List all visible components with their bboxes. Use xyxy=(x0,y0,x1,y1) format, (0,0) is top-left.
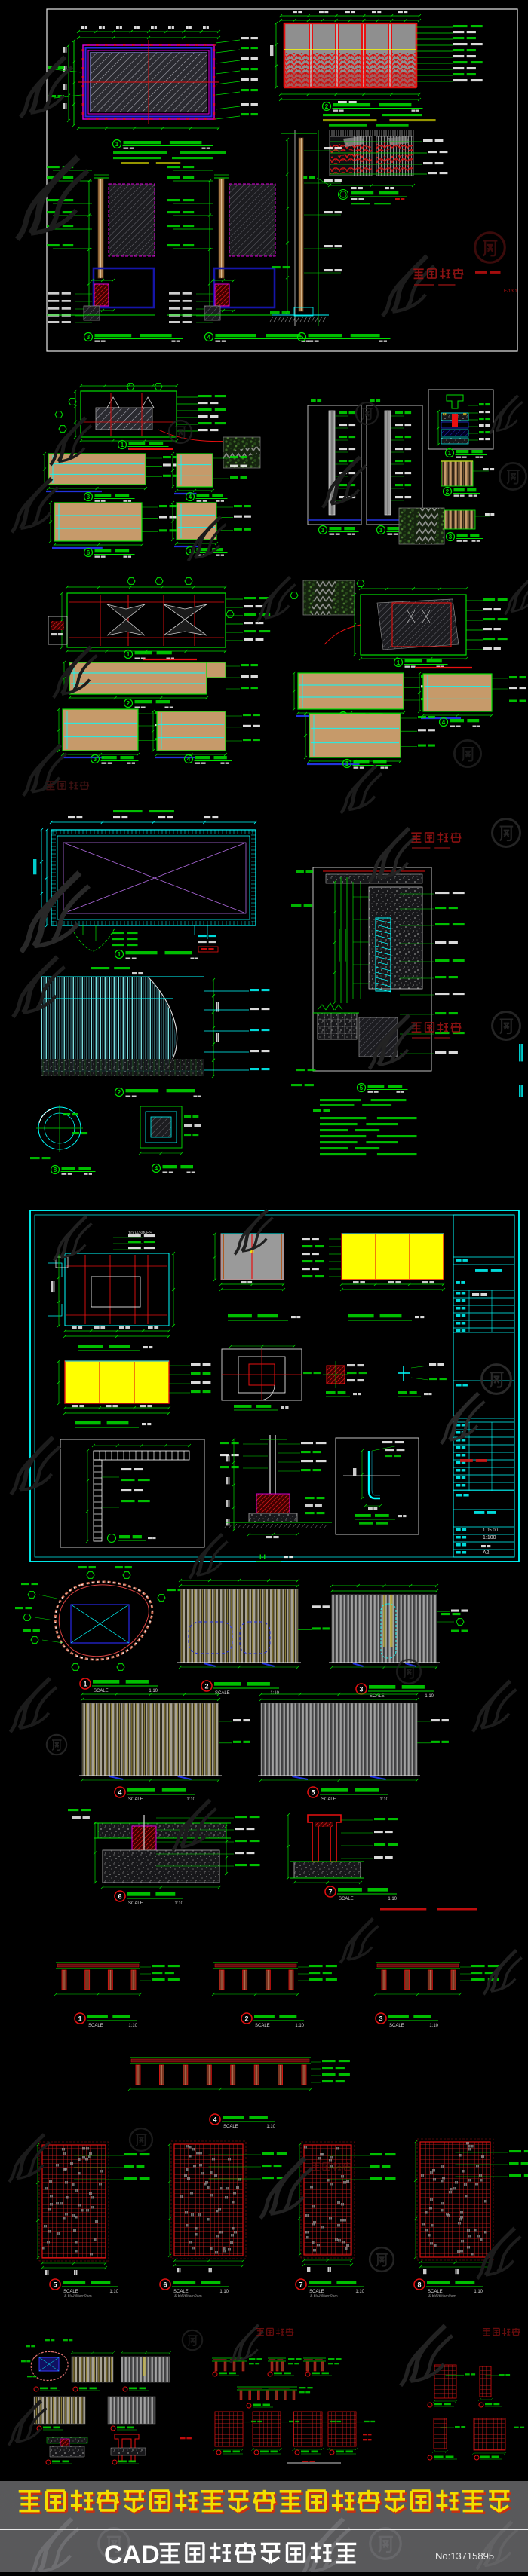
svg-text:SCALE: SCALE xyxy=(370,1694,385,1699)
svg-text:100ASINES: 100ASINES xyxy=(128,1231,152,1236)
svg-text:6: 6 xyxy=(87,549,91,556)
svg-text:5: 5 xyxy=(300,334,304,341)
svg-text:CAD: CAD xyxy=(104,2541,160,2569)
svg-text:1:10: 1:10 xyxy=(355,2290,364,2294)
svg-text:5: 5 xyxy=(53,2281,57,2288)
svg-text:SCALE: SCALE xyxy=(215,1691,230,1696)
svg-text:5: 5 xyxy=(311,1788,315,1796)
svg-text:1: 1 xyxy=(115,141,119,148)
svg-text:A2: A2 xyxy=(483,1550,490,1556)
svg-text:SCALE: SCALE xyxy=(321,1797,336,1802)
svg-text:4: 4 xyxy=(213,2116,216,2123)
svg-text:4: 4 xyxy=(118,1788,121,1796)
svg-text:3: 3 xyxy=(87,494,91,500)
svg-text:1:10: 1:10 xyxy=(109,2290,118,2294)
svg-text:SCALE: SCALE xyxy=(128,1797,143,1802)
svg-text:5: 5 xyxy=(360,1085,364,1091)
svg-text:1:10: 1:10 xyxy=(186,1797,195,1802)
svg-text:No:13715895: No:13715895 xyxy=(435,2550,494,2562)
svg-text:2: 2 xyxy=(325,103,329,110)
svg-text:1: 1 xyxy=(121,442,124,448)
svg-text:6: 6 xyxy=(118,1892,121,1900)
svg-text:3: 3 xyxy=(87,334,91,341)
svg-text:2: 2 xyxy=(127,700,130,707)
svg-text:3: 3 xyxy=(94,756,97,763)
svg-text:SCALE: SCALE xyxy=(94,1689,109,1693)
svg-text:1: 1 xyxy=(345,760,349,767)
svg-text:8: 8 xyxy=(417,2281,421,2288)
svg-text:3: 3 xyxy=(359,1685,363,1693)
svg-text:& bkUtilitarn9am: & bkUtilitarn9am xyxy=(310,2294,338,2299)
svg-text:8: 8 xyxy=(54,1167,57,1173)
svg-text:& bkUtilitarn9am: & bkUtilitarn9am xyxy=(428,2294,456,2299)
svg-text:1: 1 xyxy=(127,651,130,658)
svg-text:1:10: 1:10 xyxy=(149,1689,158,1693)
svg-text:1:10: 1:10 xyxy=(429,2024,438,2028)
svg-text:SCALE: SCALE xyxy=(339,1897,354,1901)
svg-text:7: 7 xyxy=(299,2281,302,2288)
svg-text:6: 6 xyxy=(163,2281,167,2288)
svg-text:2: 2 xyxy=(446,488,450,495)
svg-text:1:10: 1:10 xyxy=(295,2024,304,2028)
svg-text:1:10: 1:10 xyxy=(425,1694,434,1699)
svg-text:1:100: 1:100 xyxy=(483,1535,496,1540)
svg-text:1:10: 1:10 xyxy=(266,2125,275,2129)
svg-text:SCALE: SCALE xyxy=(255,2024,270,2028)
svg-text:1:10: 1:10 xyxy=(128,2024,137,2028)
svg-text:& bkUtilitarn9am: & bkUtilitarn9am xyxy=(64,2294,92,2299)
svg-text:1:10: 1:10 xyxy=(379,1797,388,1802)
svg-text:1: 1 xyxy=(448,450,452,457)
svg-text:2: 2 xyxy=(118,1089,121,1096)
svg-text:2: 2 xyxy=(204,1682,208,1690)
svg-text:1: 1 xyxy=(83,1680,87,1687)
svg-text:1:10: 1:10 xyxy=(270,1691,279,1696)
svg-text:SCALE: SCALE xyxy=(128,1901,143,1906)
svg-text:1: 1 xyxy=(78,2015,81,2022)
svg-text:1: 1 xyxy=(321,527,325,534)
svg-text:I-I: I-I xyxy=(259,1553,266,1561)
svg-text:4: 4 xyxy=(189,494,192,500)
svg-text:SCALE: SCALE xyxy=(389,2024,404,2028)
svg-text:1:10: 1:10 xyxy=(388,1897,397,1901)
svg-text:4: 4 xyxy=(155,1165,158,1172)
svg-text:3: 3 xyxy=(449,534,453,540)
svg-text:4: 4 xyxy=(187,756,191,763)
svg-text:3: 3 xyxy=(379,2015,382,2022)
svg-text:1: 1 xyxy=(397,659,401,666)
svg-text:4: 4 xyxy=(207,334,211,341)
svg-text:SCALE: SCALE xyxy=(88,2024,103,2028)
svg-text:7: 7 xyxy=(328,1888,332,1895)
svg-text:& bkUtilitarn9am: & bkUtilitarn9am xyxy=(174,2294,202,2299)
svg-text:E-13.1: E-13.1 xyxy=(504,289,517,294)
svg-text:SCALE: SCALE xyxy=(223,2125,238,2129)
svg-text:1:10: 1:10 xyxy=(219,2290,229,2294)
svg-text:1:10: 1:10 xyxy=(474,2290,483,2294)
svg-text:1: 1 xyxy=(379,527,383,534)
svg-text:1 05 00: 1 05 00 xyxy=(483,1528,499,1533)
svg-text:1:10: 1:10 xyxy=(174,1901,183,1906)
svg-text:1: 1 xyxy=(118,951,121,958)
svg-text:4: 4 xyxy=(442,719,446,726)
svg-text:2: 2 xyxy=(244,2015,248,2022)
